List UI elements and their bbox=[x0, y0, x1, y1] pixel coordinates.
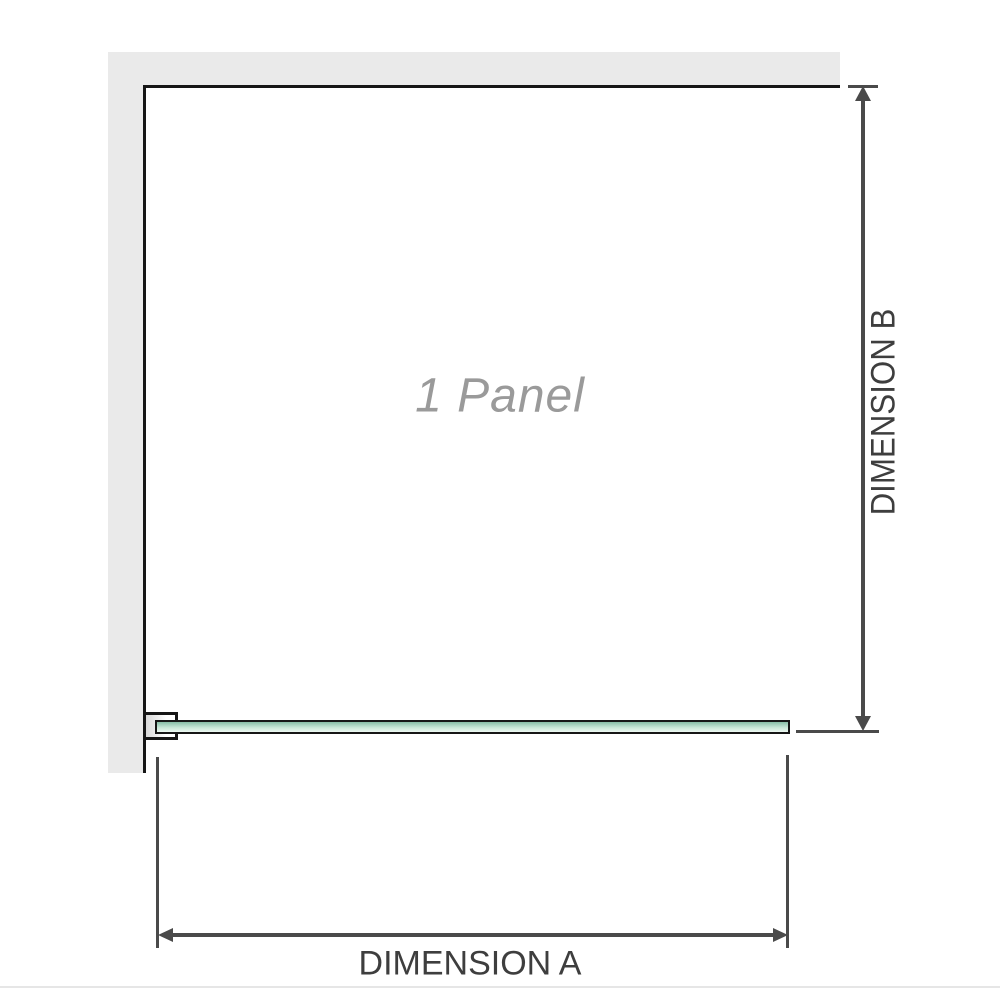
dimension-a-extension-left bbox=[156, 757, 159, 948]
bottom-divider-line bbox=[0, 986, 1000, 988]
arrow-left-icon bbox=[158, 928, 173, 942]
dimension-a-label: DIMENSION A bbox=[359, 945, 582, 984]
dimension-a-extension-right bbox=[786, 755, 789, 948]
wall-inner-edge-left bbox=[143, 85, 146, 773]
wall-inner-edge-top bbox=[143, 85, 840, 88]
dimension-a-line bbox=[170, 933, 776, 937]
arrow-right-icon bbox=[773, 928, 788, 942]
panel-count-label: 1 Panel bbox=[415, 369, 585, 424]
wall-top bbox=[108, 52, 840, 85]
shower-screen-diagram: 1 Panel DIMENSION B DIMENSION A bbox=[0, 0, 1000, 1000]
dimension-b-label: DIMENSION B bbox=[865, 309, 904, 516]
arrow-up-icon bbox=[855, 86, 871, 101]
glass-panel-bar bbox=[155, 720, 790, 734]
arrow-down-icon bbox=[855, 716, 871, 731]
wall-left bbox=[108, 52, 143, 773]
